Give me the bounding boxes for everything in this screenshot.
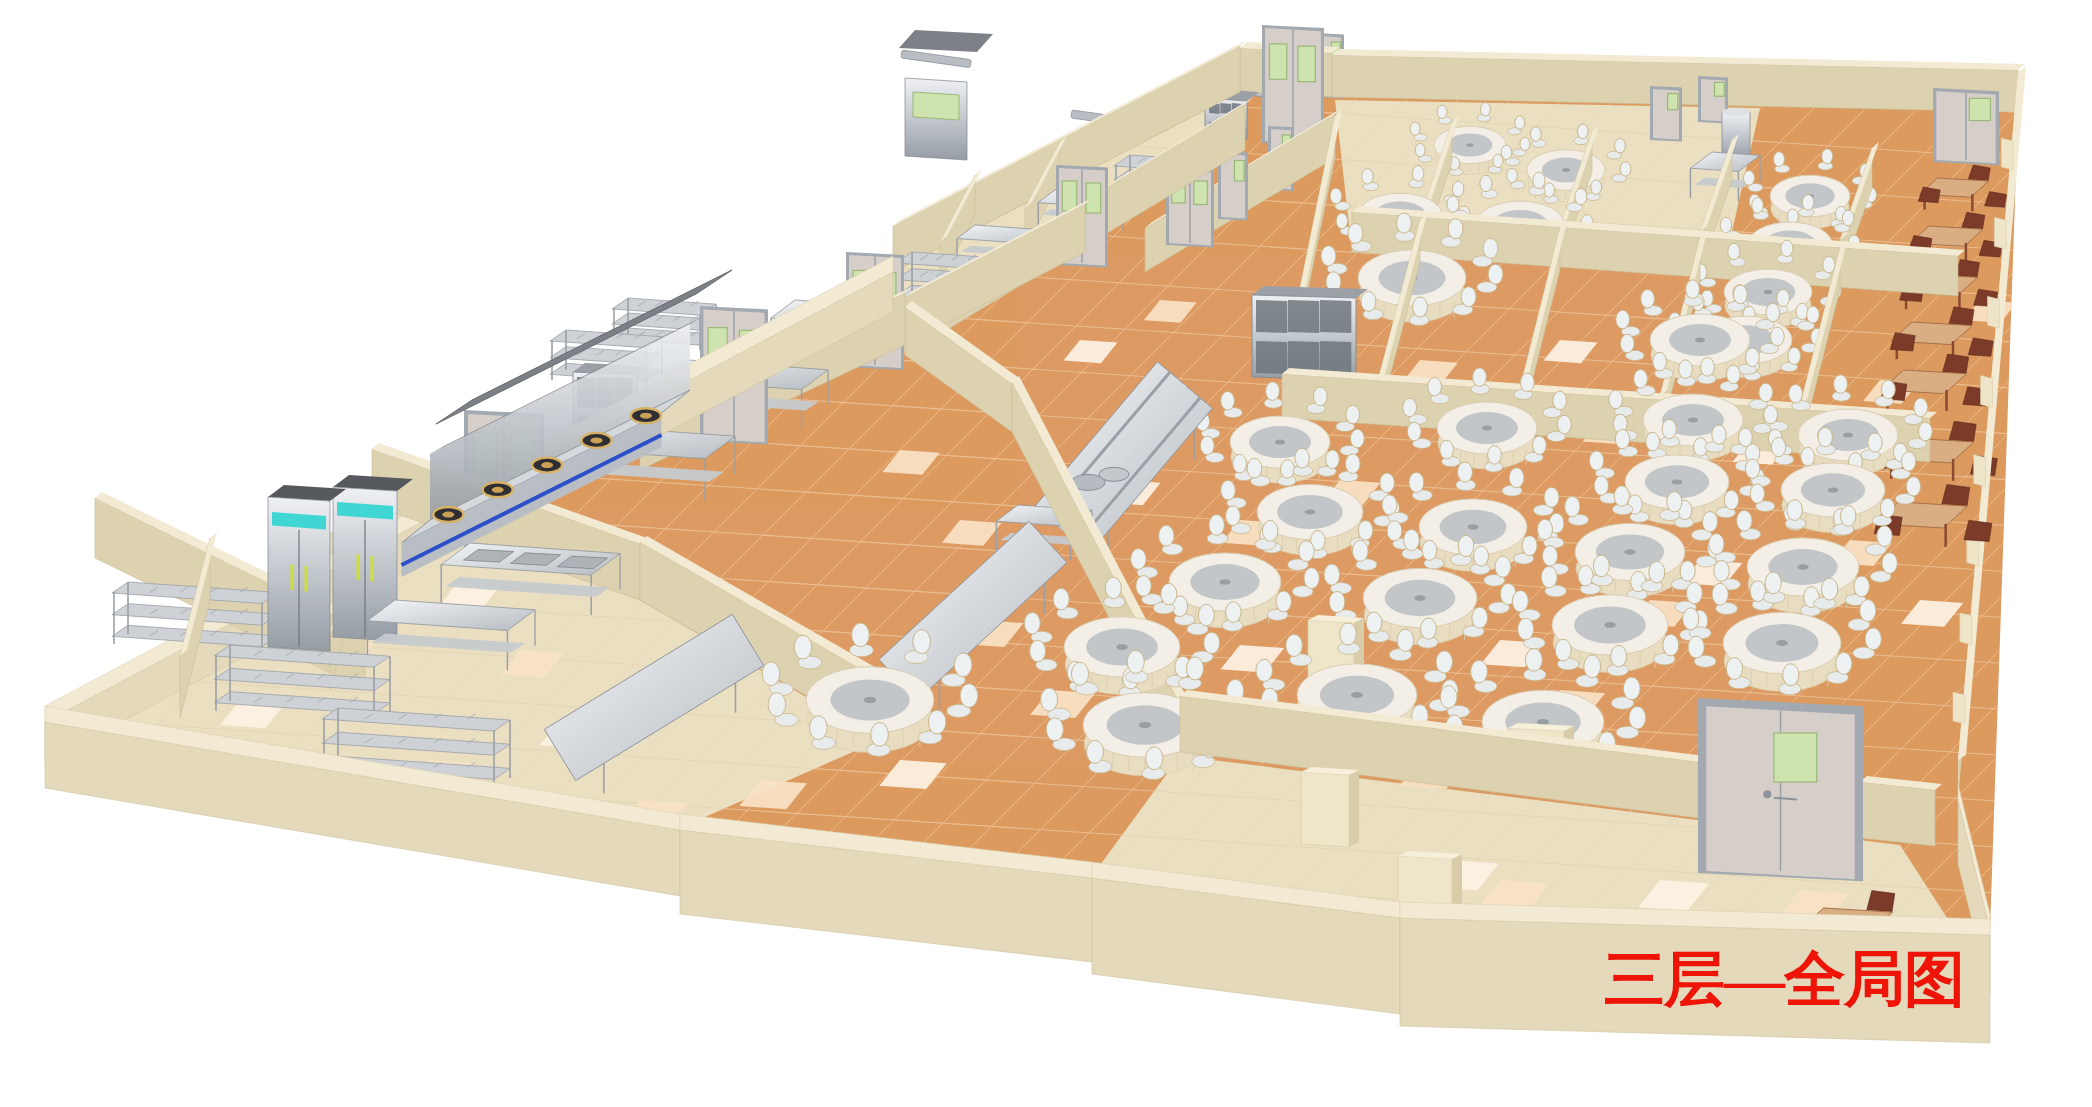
column [1301, 767, 1359, 847]
floor-render-3f [0, 0, 2092, 1107]
double-door-main [1698, 698, 1863, 881]
door [1650, 86, 1682, 142]
floor-caption: 三层—全局图 [1604, 949, 1964, 1010]
wall [1860, 776, 1942, 846]
floorplan-image: 三层—全局图 [0, 0, 2092, 1107]
storage-cabinet [1252, 286, 1368, 380]
door [1933, 88, 1999, 165]
ceiling-light [901, 50, 971, 68]
cook-station [899, 30, 993, 160]
water-boiler [1722, 108, 1750, 160]
